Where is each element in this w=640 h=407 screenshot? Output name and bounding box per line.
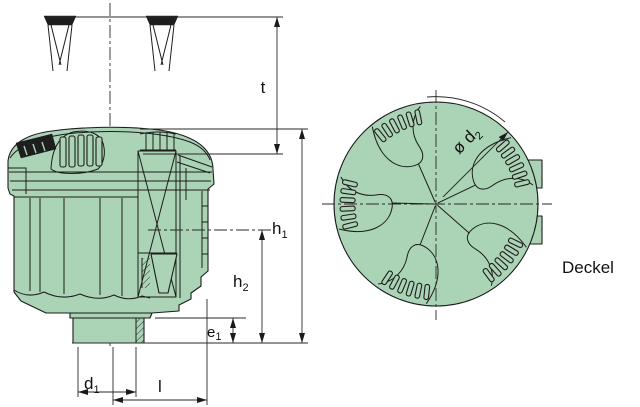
thread-stub	[136, 318, 144, 343]
label-h1: h1	[272, 219, 288, 241]
filter-body	[8, 127, 214, 343]
clip-right	[146, 16, 178, 71]
front-section-view	[8, 3, 214, 346]
label-e1: e1	[207, 324, 221, 343]
label-l: l	[158, 377, 162, 396]
top-view-cover: ø d2 Deckel	[322, 90, 614, 320]
label-h2: h2	[233, 272, 249, 294]
cover-caption: Deckel	[562, 258, 614, 277]
label-t: t	[261, 78, 266, 97]
clip-left	[44, 16, 76, 71]
technical-drawing: t h1 h2 e1 d1 l ø d2 Deckel	[0, 0, 640, 407]
label-d1: d1	[84, 374, 100, 396]
